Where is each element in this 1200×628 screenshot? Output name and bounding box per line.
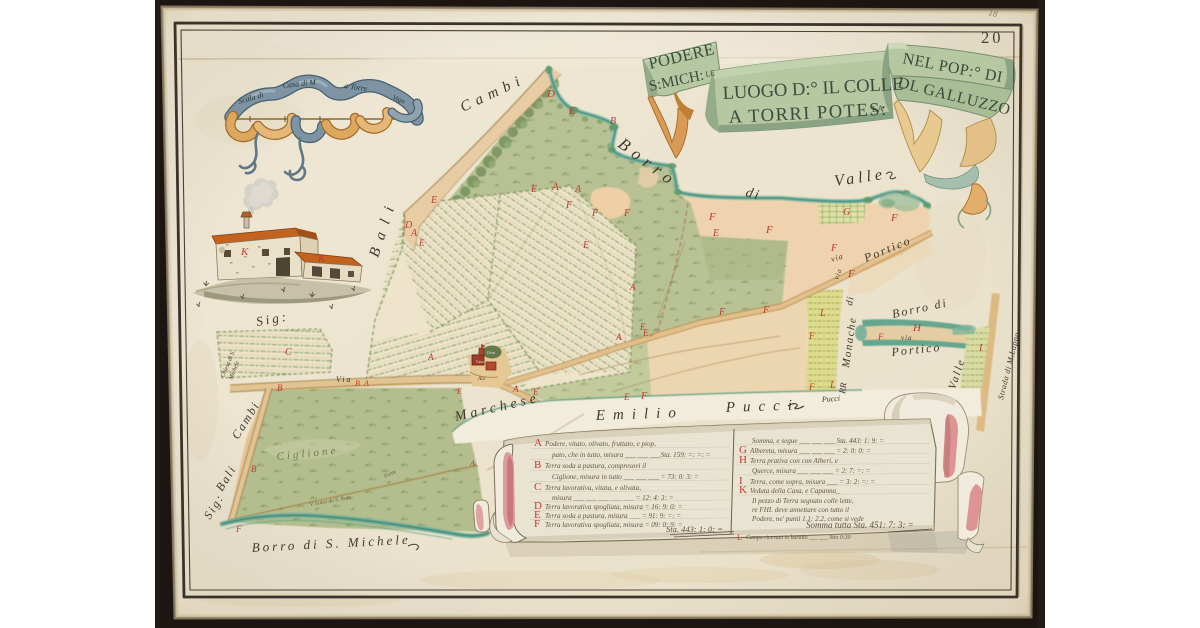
svg-text:A: A <box>512 384 519 394</box>
svg-text:Albereta, misura ___ ___ ___ =: Albereta, misura ___ ___ ___ = 2: 0: 0: … <box>749 447 871 455</box>
svg-text:Aia: Aia <box>477 377 485 382</box>
svg-text:K: K <box>240 246 249 258</box>
svg-text:F: F <box>591 208 599 219</box>
svg-text:Veduta della Casa, e Capanna_: Veduta della Casa, e Capanna_ <box>750 487 840 495</box>
svg-text:Via: Via <box>336 375 353 384</box>
svg-text:L: L <box>737 533 742 542</box>
svg-text:F: F <box>762 305 770 316</box>
svg-text:Terra, come sopra, misura ___: Terra, come sopra, misura ___ = 3: 2: =:… <box>750 478 875 486</box>
svg-text:E: E <box>582 240 589 251</box>
svg-text:F: F <box>847 268 855 280</box>
svg-text:D: D <box>546 88 555 100</box>
svg-text:F: F <box>808 331 815 341</box>
svg-text:F: F <box>830 243 838 254</box>
svg-text:Terra prativa con con Alberi,: Terra prativa con con Alberi, e <box>750 457 838 465</box>
svg-text:Terra lavorativa spogliata, mi: Terra lavorativa spogliata, misura = 09:… <box>545 521 683 529</box>
svg-text:A: A <box>469 459 475 468</box>
svg-text:Casa: Casa <box>476 359 484 364</box>
svg-text:E: E <box>418 238 425 248</box>
svg-text:Somma tutta Sta. 451: 7: 3: =: Somma tutta Sta. 451: 7: 3: = <box>806 520 914 530</box>
svg-text:Orto: Orto <box>487 350 496 355</box>
svg-text:G: G <box>843 207 850 218</box>
svg-text:Terra soda a pastura, compreso: Terra soda a pastura, compresovi il <box>545 462 646 470</box>
svg-text:A: A <box>615 332 622 342</box>
svg-text:A: A <box>427 352 434 362</box>
svg-text:H: H <box>912 322 922 334</box>
svg-text:K: K <box>317 253 326 265</box>
svg-text:RR: RR <box>837 382 849 396</box>
svg-text:F: F <box>623 208 631 219</box>
svg-text:E: E <box>456 387 462 396</box>
svg-text:via: via <box>901 334 913 342</box>
svg-text:LA: LA <box>872 103 885 114</box>
svg-text:E: E <box>623 392 630 402</box>
svg-text:Pucci: Pucci <box>821 394 841 404</box>
svg-text:E: E <box>430 195 437 206</box>
svg-text:F: F <box>235 524 242 534</box>
svg-text:Terra lavorativa, vitata, e ol: Terra lavorativa, vitata, e olivata, <box>545 484 641 492</box>
svg-text:F: F <box>708 211 716 223</box>
svg-text:L: L <box>819 308 826 319</box>
svg-text:F: F <box>565 200 573 211</box>
svg-text:Ciglione, misura in tutto ___: Ciglione, misura in tutto ___ ___ ___ = … <box>552 473 699 481</box>
svg-text:B: B <box>277 383 283 393</box>
svg-text:E: E <box>532 387 539 397</box>
svg-text:H: H <box>739 454 747 466</box>
svg-text:C: C <box>534 481 541 493</box>
svg-text:I: I <box>978 343 983 354</box>
svg-text:Pucci: Pucci <box>725 397 801 416</box>
svg-text:Il pezzo di Terra segnato coll: Il pezzo di Terra segnato colle lette, <box>751 497 854 505</box>
svg-text:F: F <box>808 382 815 392</box>
svg-text:E: E <box>568 106 575 117</box>
svg-text:F: F <box>890 212 898 224</box>
svg-text:L: L <box>829 380 836 391</box>
svg-text:B: B <box>355 379 360 388</box>
svg-text:B: B <box>610 116 616 127</box>
svg-text:pato, che in tutto, misura ___: pato, che in tutto, misura ___ ___ ___St… <box>551 451 711 459</box>
svg-text:Podere, vitato, olivato, frutt: Podere, vitato, olivato, fruttato, e pio… <box>544 440 656 448</box>
svg-text:A: A <box>410 228 418 239</box>
svg-text:A: A <box>363 379 369 388</box>
svg-text:di: di <box>844 295 857 307</box>
svg-text:B: B <box>534 459 541 471</box>
svg-text:C: C <box>285 347 292 358</box>
svg-text:F: F <box>640 391 648 402</box>
svg-text:F: F <box>534 518 540 530</box>
svg-text:Campo ricevuto in baratto ___: Campo ricevuto in baratto ___ ___ Stio 0… <box>746 535 851 541</box>
svg-text:A: A <box>551 181 559 193</box>
svg-text:E: E <box>712 228 719 239</box>
svg-text:A: A <box>574 184 582 195</box>
svg-text:F: F <box>718 307 726 318</box>
svg-text:E: E <box>530 184 537 195</box>
svg-text:F: F <box>877 332 884 342</box>
svg-text:Querce, misura ___ ___ ___ = 2: Querce, misura ___ ___ ___ = 2: 7: =: = <box>752 467 871 475</box>
svg-text:re FHI. deve annettare con tut: re FHI. deve annettare con tutto il <box>752 506 849 514</box>
svg-text:F: F <box>765 224 773 236</box>
svg-text:A: A <box>629 282 636 292</box>
svg-text:Emilio: Emilio <box>595 405 685 424</box>
svg-text:20: 20 <box>981 28 1004 47</box>
svg-text:E: E <box>642 328 649 338</box>
svg-text:B: B <box>251 464 257 474</box>
svg-text:A: A <box>534 437 542 449</box>
